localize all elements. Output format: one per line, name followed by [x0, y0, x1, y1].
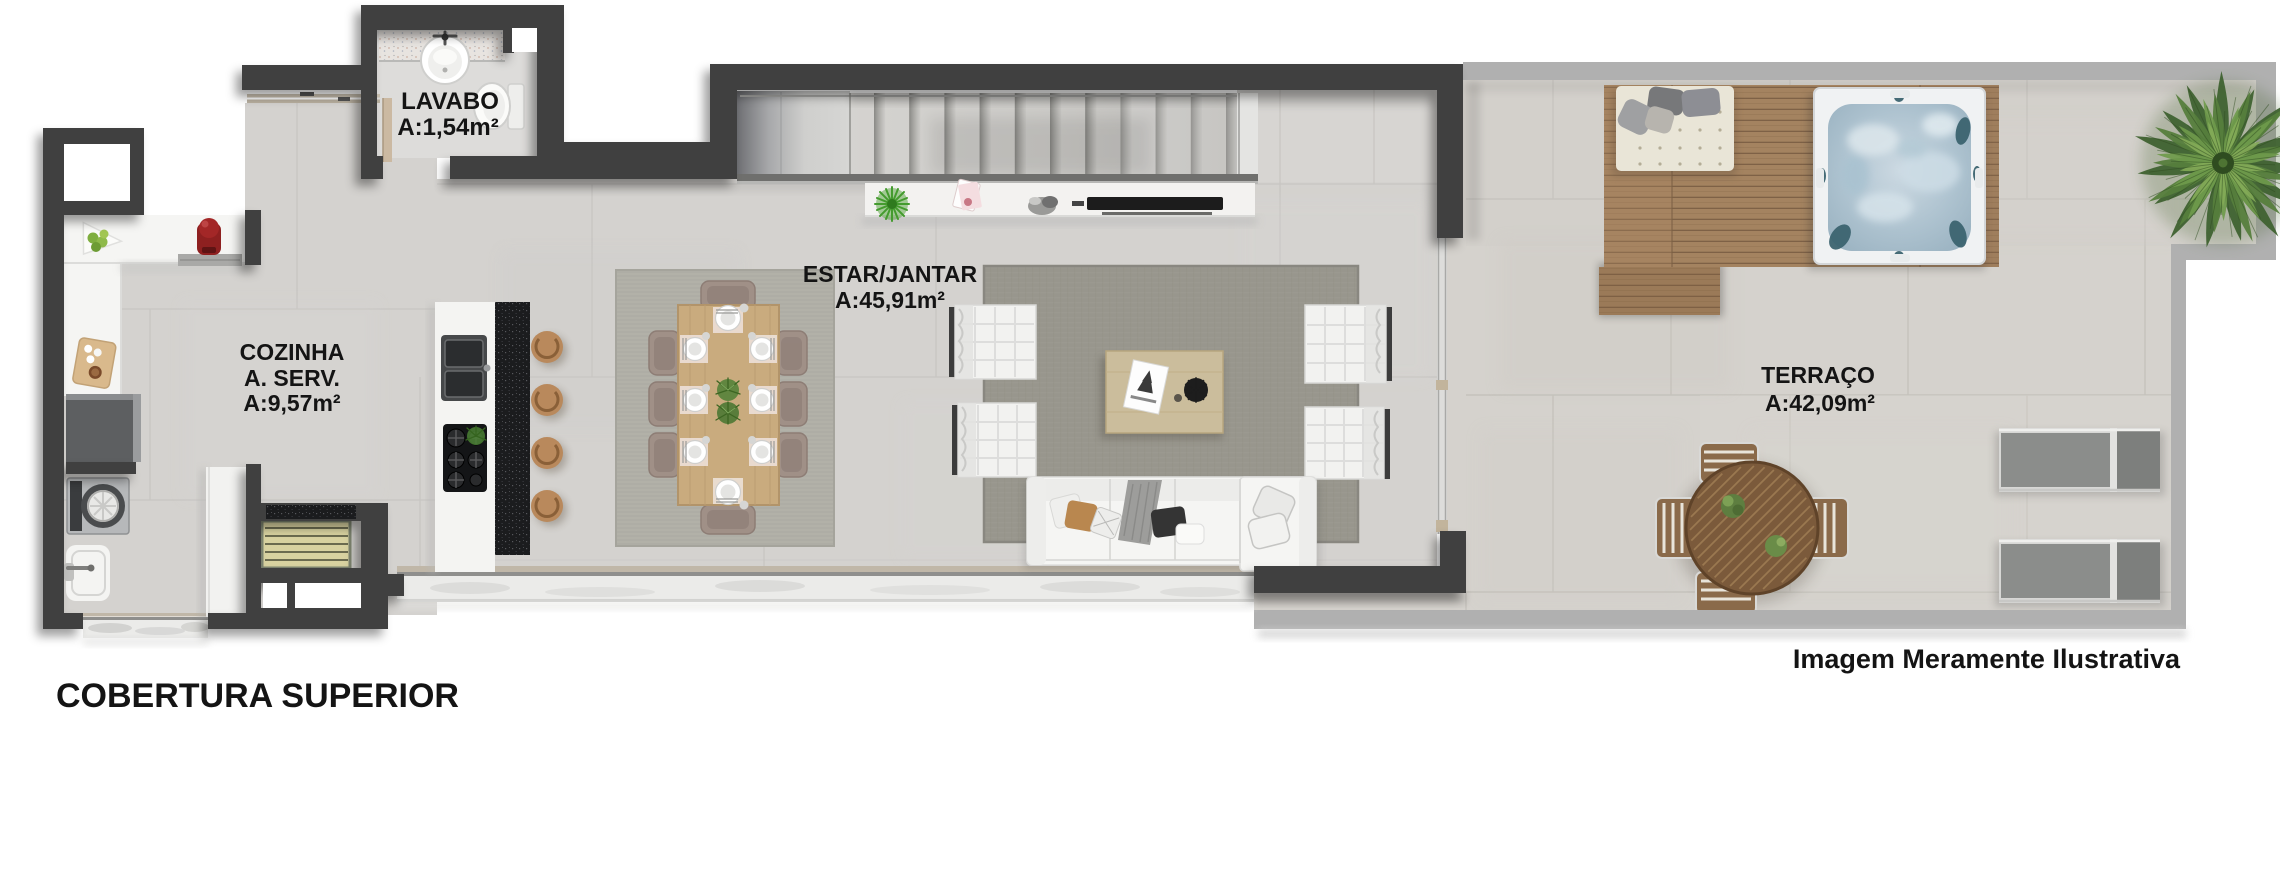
svg-text:A. SERV.: A. SERV. [244, 365, 340, 391]
svg-text:COBERTURA SUPERIOR: COBERTURA SUPERIOR [56, 677, 459, 715]
svg-text:COZINHA: COZINHA [240, 339, 345, 365]
svg-text:Imagem Meramente Ilustrativa: Imagem Meramente Ilustrativa [1793, 644, 2181, 674]
svg-text:A:1,54m²: A:1,54m² [397, 114, 498, 141]
svg-text:A:9,57m²: A:9,57m² [243, 390, 340, 416]
svg-text:A:42,09m²: A:42,09m² [1765, 390, 1875, 416]
svg-text:TERRAÇO: TERRAÇO [1761, 362, 1875, 388]
svg-text:LAVABO: LAVABO [401, 88, 499, 115]
svg-text:ESTAR/JANTAR: ESTAR/JANTAR [803, 261, 978, 287]
svg-text:A:45,91m²: A:45,91m² [835, 287, 945, 313]
